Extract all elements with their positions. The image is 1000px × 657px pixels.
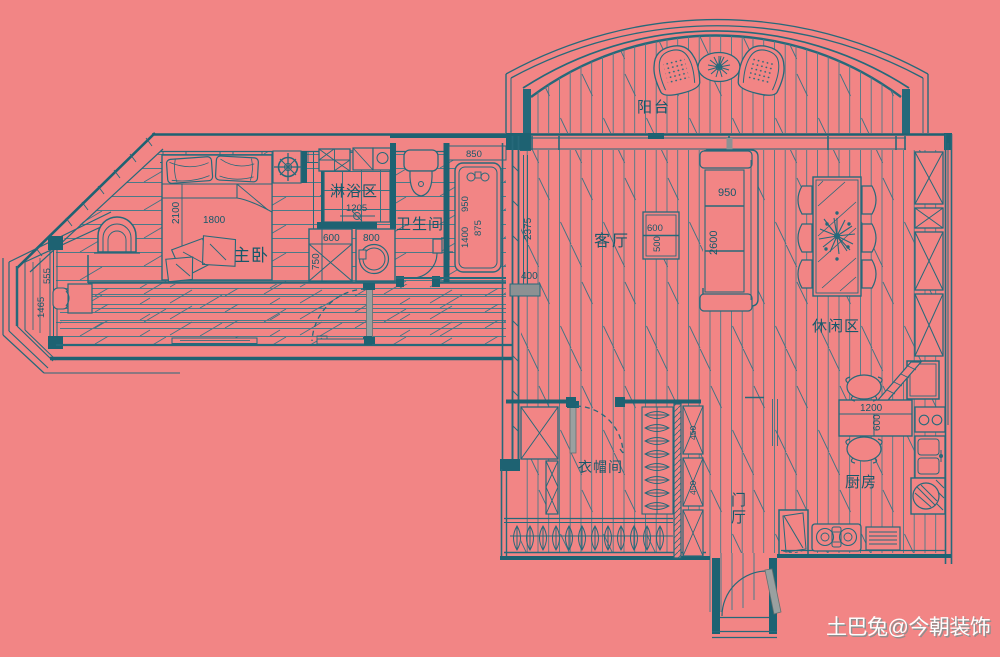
svg-text:衣帽间: 衣帽间 (578, 459, 623, 475)
svg-text:800: 800 (363, 233, 380, 244)
svg-text:1400: 1400 (460, 227, 471, 248)
svg-text:阳台: 阳台 (637, 99, 671, 116)
svg-text:600: 600 (872, 414, 883, 431)
svg-text:卫生间: 卫生间 (396, 216, 444, 233)
svg-text:950: 950 (718, 187, 736, 199)
svg-text:主卧: 主卧 (233, 246, 269, 265)
svg-text:875: 875 (473, 220, 484, 236)
svg-text:600: 600 (323, 233, 340, 244)
svg-text:淋浴区: 淋浴区 (330, 183, 378, 200)
svg-text:客厅: 客厅 (594, 232, 630, 250)
svg-text:2100: 2100 (171, 201, 182, 224)
svg-text:950: 950 (460, 196, 471, 212)
svg-text:门: 门 (731, 492, 746, 509)
svg-text:1465: 1465 (36, 297, 47, 318)
svg-text:1800: 1800 (203, 215, 226, 226)
svg-text:厨房: 厨房 (845, 474, 877, 491)
svg-text:450: 450 (688, 481, 698, 495)
svg-text:土巴兔@今朝装饰: 土巴兔@今朝装饰 (826, 616, 990, 639)
svg-text:555: 555 (42, 268, 53, 284)
svg-text:2600: 2600 (708, 231, 720, 255)
svg-text:450: 450 (688, 426, 698, 440)
svg-text:750: 750 (311, 253, 322, 270)
svg-text:400: 400 (521, 271, 538, 282)
svg-text:600: 600 (647, 223, 663, 234)
svg-text:厅: 厅 (731, 509, 746, 526)
svg-text:850: 850 (466, 149, 482, 160)
svg-text:1200: 1200 (860, 403, 883, 414)
svg-text:2375: 2375 (523, 217, 534, 240)
svg-text:休闲区: 休闲区 (812, 318, 860, 335)
svg-text:500: 500 (652, 236, 663, 252)
